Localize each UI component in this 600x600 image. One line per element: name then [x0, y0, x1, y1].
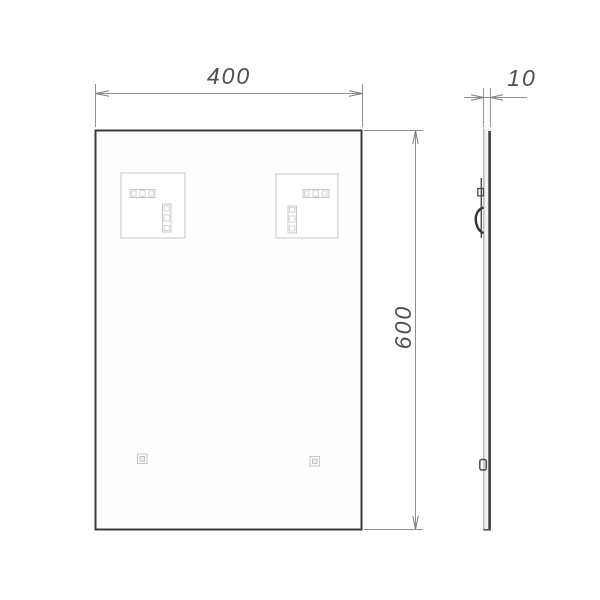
side-view	[476, 129, 491, 530]
slot-hole	[140, 191, 145, 197]
fixing-point-left	[138, 454, 148, 464]
slot-hole	[132, 191, 137, 196]
bracket-hook-curve	[476, 208, 484, 234]
height-dimension-label: 600	[390, 305, 416, 349]
drawing-canvas: 400 600 10	[0, 0, 600, 600]
slot-hole	[305, 191, 310, 196]
fixing-point-right	[310, 457, 320, 467]
fixing-square-inner	[313, 459, 318, 464]
slot-hole	[164, 206, 169, 211]
width-dimension-label: 400	[207, 63, 251, 89]
slot-hole	[313, 191, 318, 197]
slot-hole	[290, 208, 295, 213]
thickness-dimension: 10	[464, 65, 537, 127]
slot-hole	[289, 216, 295, 222]
plate-outline	[121, 173, 185, 238]
thickness-dimension-label: 10	[507, 65, 537, 91]
slot-hole	[323, 191, 328, 196]
wall-bracket-hook	[476, 178, 484, 238]
slot-hole	[149, 191, 154, 196]
technical-drawing: 400 600 10	[0, 0, 600, 600]
mounting-plate-right	[276, 174, 338, 238]
fixing-square-inner	[140, 457, 145, 462]
slot-hole	[164, 226, 169, 231]
width-dimension: 400	[96, 63, 363, 127]
mounting-plate-left	[121, 173, 185, 238]
slot-hole	[164, 215, 170, 221]
plate-outline	[276, 174, 338, 238]
slot-hole	[290, 226, 295, 231]
height-dimension: 600	[364, 131, 423, 530]
front-view	[96, 131, 362, 530]
